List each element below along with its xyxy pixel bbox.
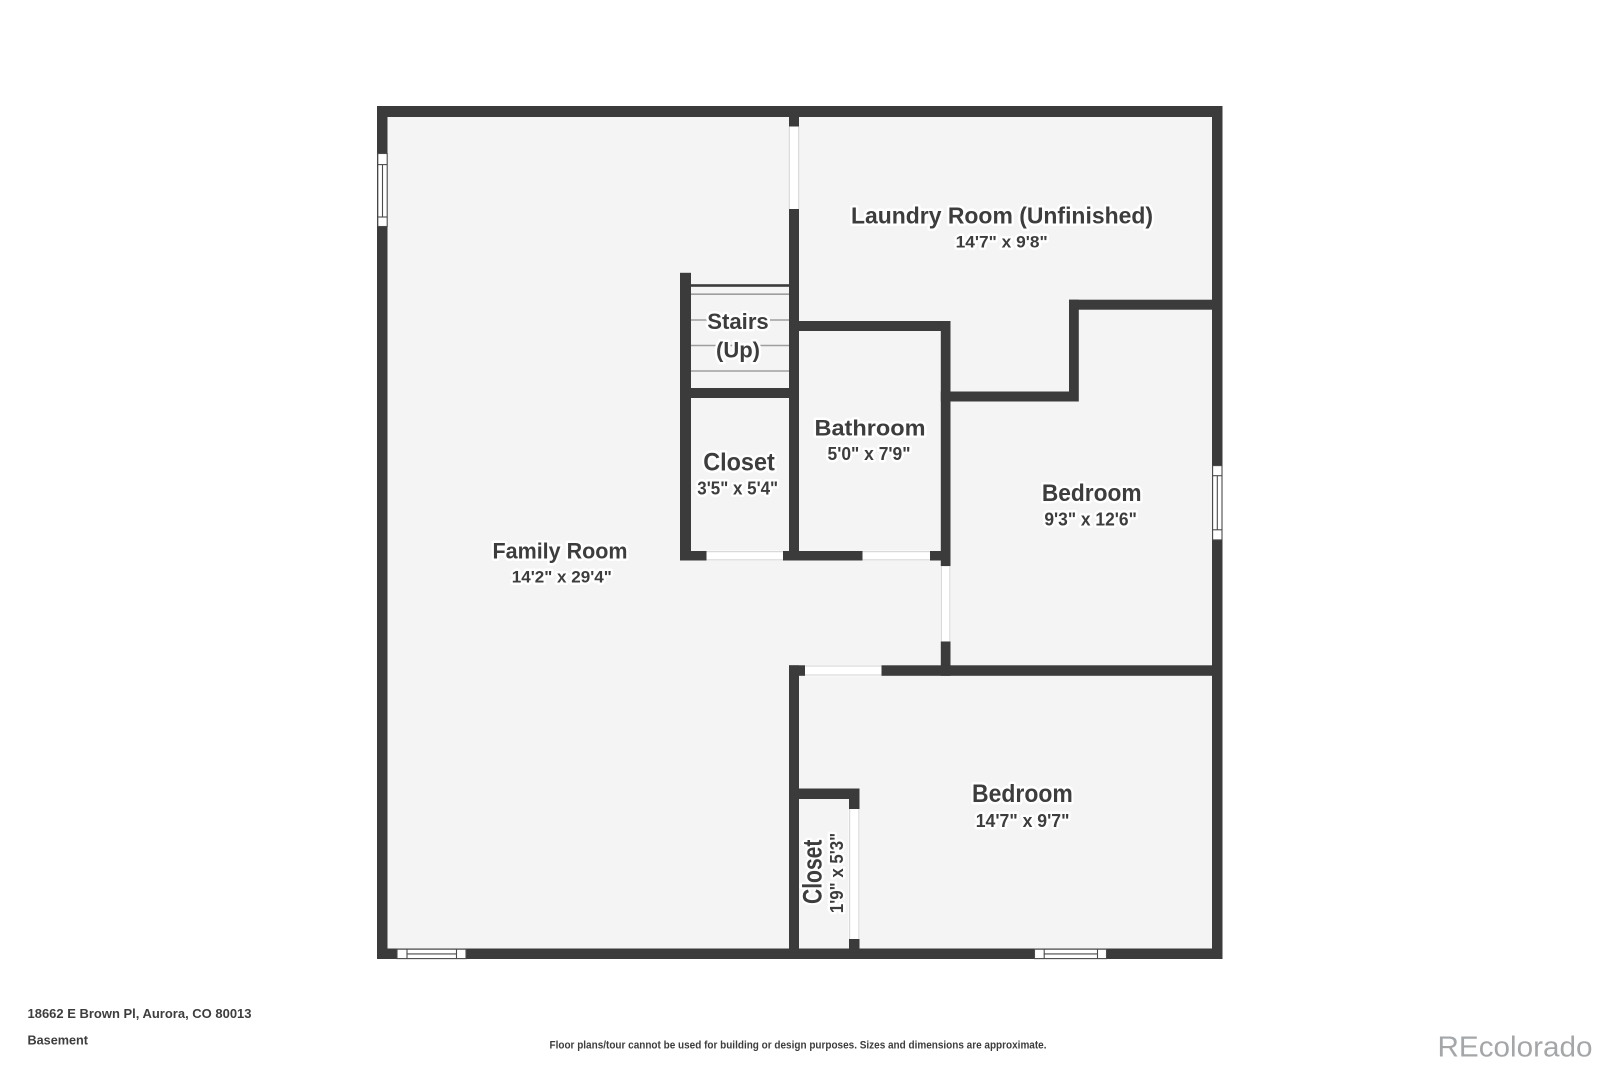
svg-text:18662 E Brown Pl, Aurora, CO 8: 18662 E Brown Pl, Aurora, CO 80013 [28,1006,252,1021]
svg-text:Stairs: Stairs [707,309,769,334]
svg-text:(Up): (Up) [716,337,760,362]
svg-text:Floor plans/tour cannot be use: Floor plans/tour cannot be used for buil… [550,1040,1047,1052]
svg-text:5'0" x 7'9": 5'0" x 7'9" [828,444,911,464]
svg-text:Bedroom: Bedroom [1042,480,1142,507]
svg-text:3'5" x 5'4": 3'5" x 5'4" [697,479,778,499]
svg-text:REcolorado: REcolorado [1438,1031,1593,1063]
svg-text:Bedroom: Bedroom [972,780,1073,808]
svg-text:Laundry Room (Unfinished): Laundry Room (Unfinished) [851,203,1153,229]
svg-text:14'7" x 9'8": 14'7" x 9'8" [956,233,1048,252]
svg-text:Bathroom: Bathroom [815,415,926,440]
svg-text:9'3" x 12'6": 9'3" x 12'6" [1044,510,1137,530]
svg-text:Basement: Basement [28,1033,89,1048]
svg-text:Family Room: Family Room [493,538,628,563]
svg-text:Closet: Closet [703,449,775,476]
svg-text:14'2" x 29'4": 14'2" x 29'4" [512,568,612,587]
svg-text:14'7" x 9'7": 14'7" x 9'7" [976,811,1070,831]
svg-text:Closet: Closet [797,840,827,905]
svg-text:1'9" x 5'3": 1'9" x 5'3" [827,833,847,913]
